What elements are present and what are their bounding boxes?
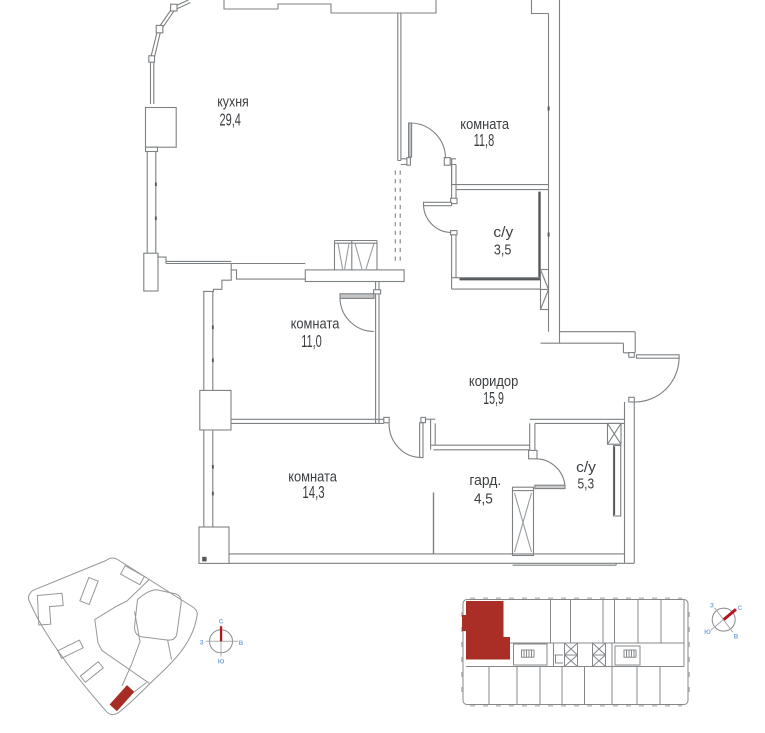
- svg-text:С: С: [738, 605, 743, 612]
- svg-text:З: З: [200, 640, 204, 647]
- svg-text:11,0: 11,0: [301, 331, 322, 351]
- svg-text:5,3: 5,3: [578, 477, 595, 493]
- svg-text:В: В: [734, 633, 739, 640]
- svg-text:3,5: 3,5: [494, 243, 511, 259]
- svg-text:29,4: 29,4: [220, 109, 242, 129]
- svg-text:В: В: [239, 640, 244, 647]
- svg-text:Ю: Ю: [218, 658, 225, 665]
- svg-text:комната: комната: [291, 317, 340, 333]
- svg-text:15,9: 15,9: [483, 388, 504, 408]
- svg-text:Ю: Ю: [704, 629, 711, 636]
- svg-text:З: З: [710, 602, 714, 609]
- svg-text:11,8: 11,8: [474, 130, 495, 150]
- svg-text:гард.: гард.: [469, 473, 501, 489]
- svg-text:С: С: [219, 619, 224, 626]
- svg-text:14,3: 14,3: [302, 482, 324, 502]
- svg-text:с/у: с/у: [576, 460, 597, 476]
- svg-text:с/у: с/у: [493, 225, 514, 241]
- svg-text:кухня: кухня: [217, 95, 249, 111]
- svg-text:4,5: 4,5: [474, 492, 493, 508]
